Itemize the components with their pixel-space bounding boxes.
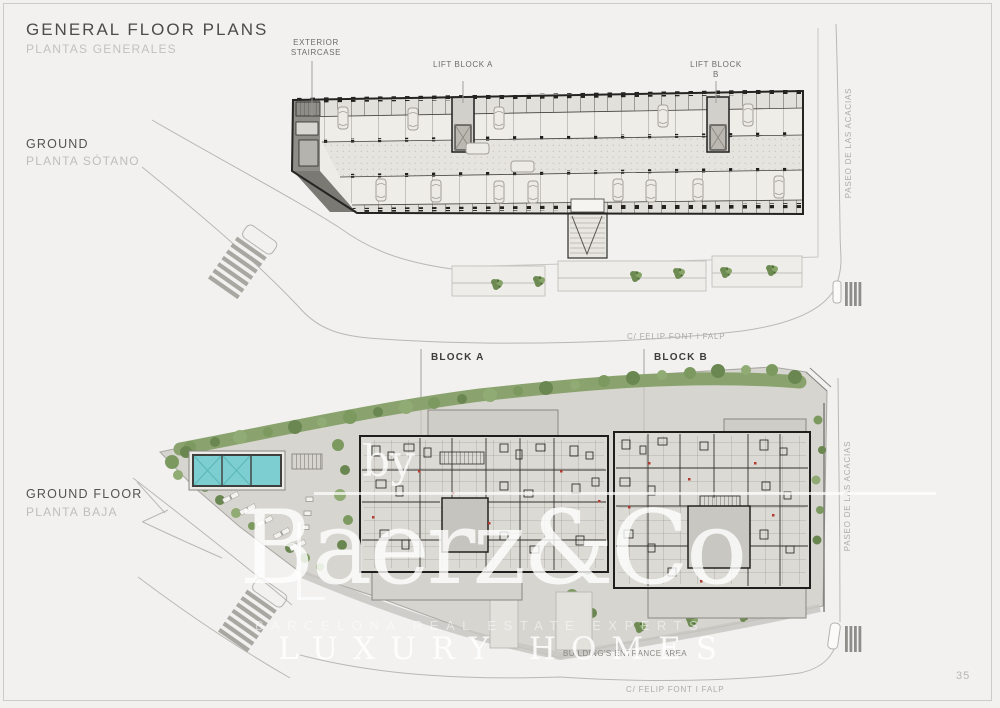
lift-block-b-label: LIFT BLOCK B	[686, 60, 746, 81]
street-label-felip-lower: C/ FELIP FONT I FALP	[626, 685, 724, 695]
swimming-pool	[189, 451, 285, 490]
street-label-paseo-lower: PASEO DE LAS ACACIAS	[843, 441, 853, 552]
ground-floor-plan	[160, 349, 861, 658]
entrance-area-label: BUILDING'S ENTRANCE AREA	[563, 649, 687, 659]
upper-plan-label-es: PLANTA SÓTANO	[26, 154, 140, 170]
crosswalk-lower-left	[218, 575, 289, 653]
garden-stairs	[292, 454, 322, 469]
crosswalk-upper-right	[833, 281, 861, 306]
garage-ramp	[568, 199, 607, 258]
upper-plan-label: GROUND	[26, 136, 89, 152]
crosswalk-upper-left	[208, 222, 279, 300]
lift-block-a-label: LIFT BLOCK A	[433, 60, 493, 70]
street-label-felip-upper: C/ FELIP FONT I FALP	[627, 332, 725, 342]
street-label-paseo-upper: PASEO DE LAS ACACIAS	[844, 88, 854, 199]
page-title: GENERAL FLOOR PLANS	[26, 19, 268, 41]
exterior-staircase-label: EXTERIOR STAIRCASE	[280, 38, 352, 59]
crosswalk-lower-right	[827, 622, 861, 652]
lift-core-block-b	[707, 97, 729, 152]
block-a-label: BLOCK A	[431, 351, 485, 364]
page-number: 35	[956, 669, 970, 683]
basement-parking-plan	[208, 61, 861, 306]
page-subtitle: PLANTAS GENERALES	[26, 42, 177, 58]
lower-plan-label: GROUND FLOOR	[26, 486, 143, 502]
block-a-building	[360, 410, 608, 600]
street-planters	[452, 256, 802, 296]
block-b-label: BLOCK B	[654, 351, 708, 364]
lower-plan-label-es: PLANTA BAJA	[26, 505, 118, 521]
block-b-building	[614, 419, 810, 618]
